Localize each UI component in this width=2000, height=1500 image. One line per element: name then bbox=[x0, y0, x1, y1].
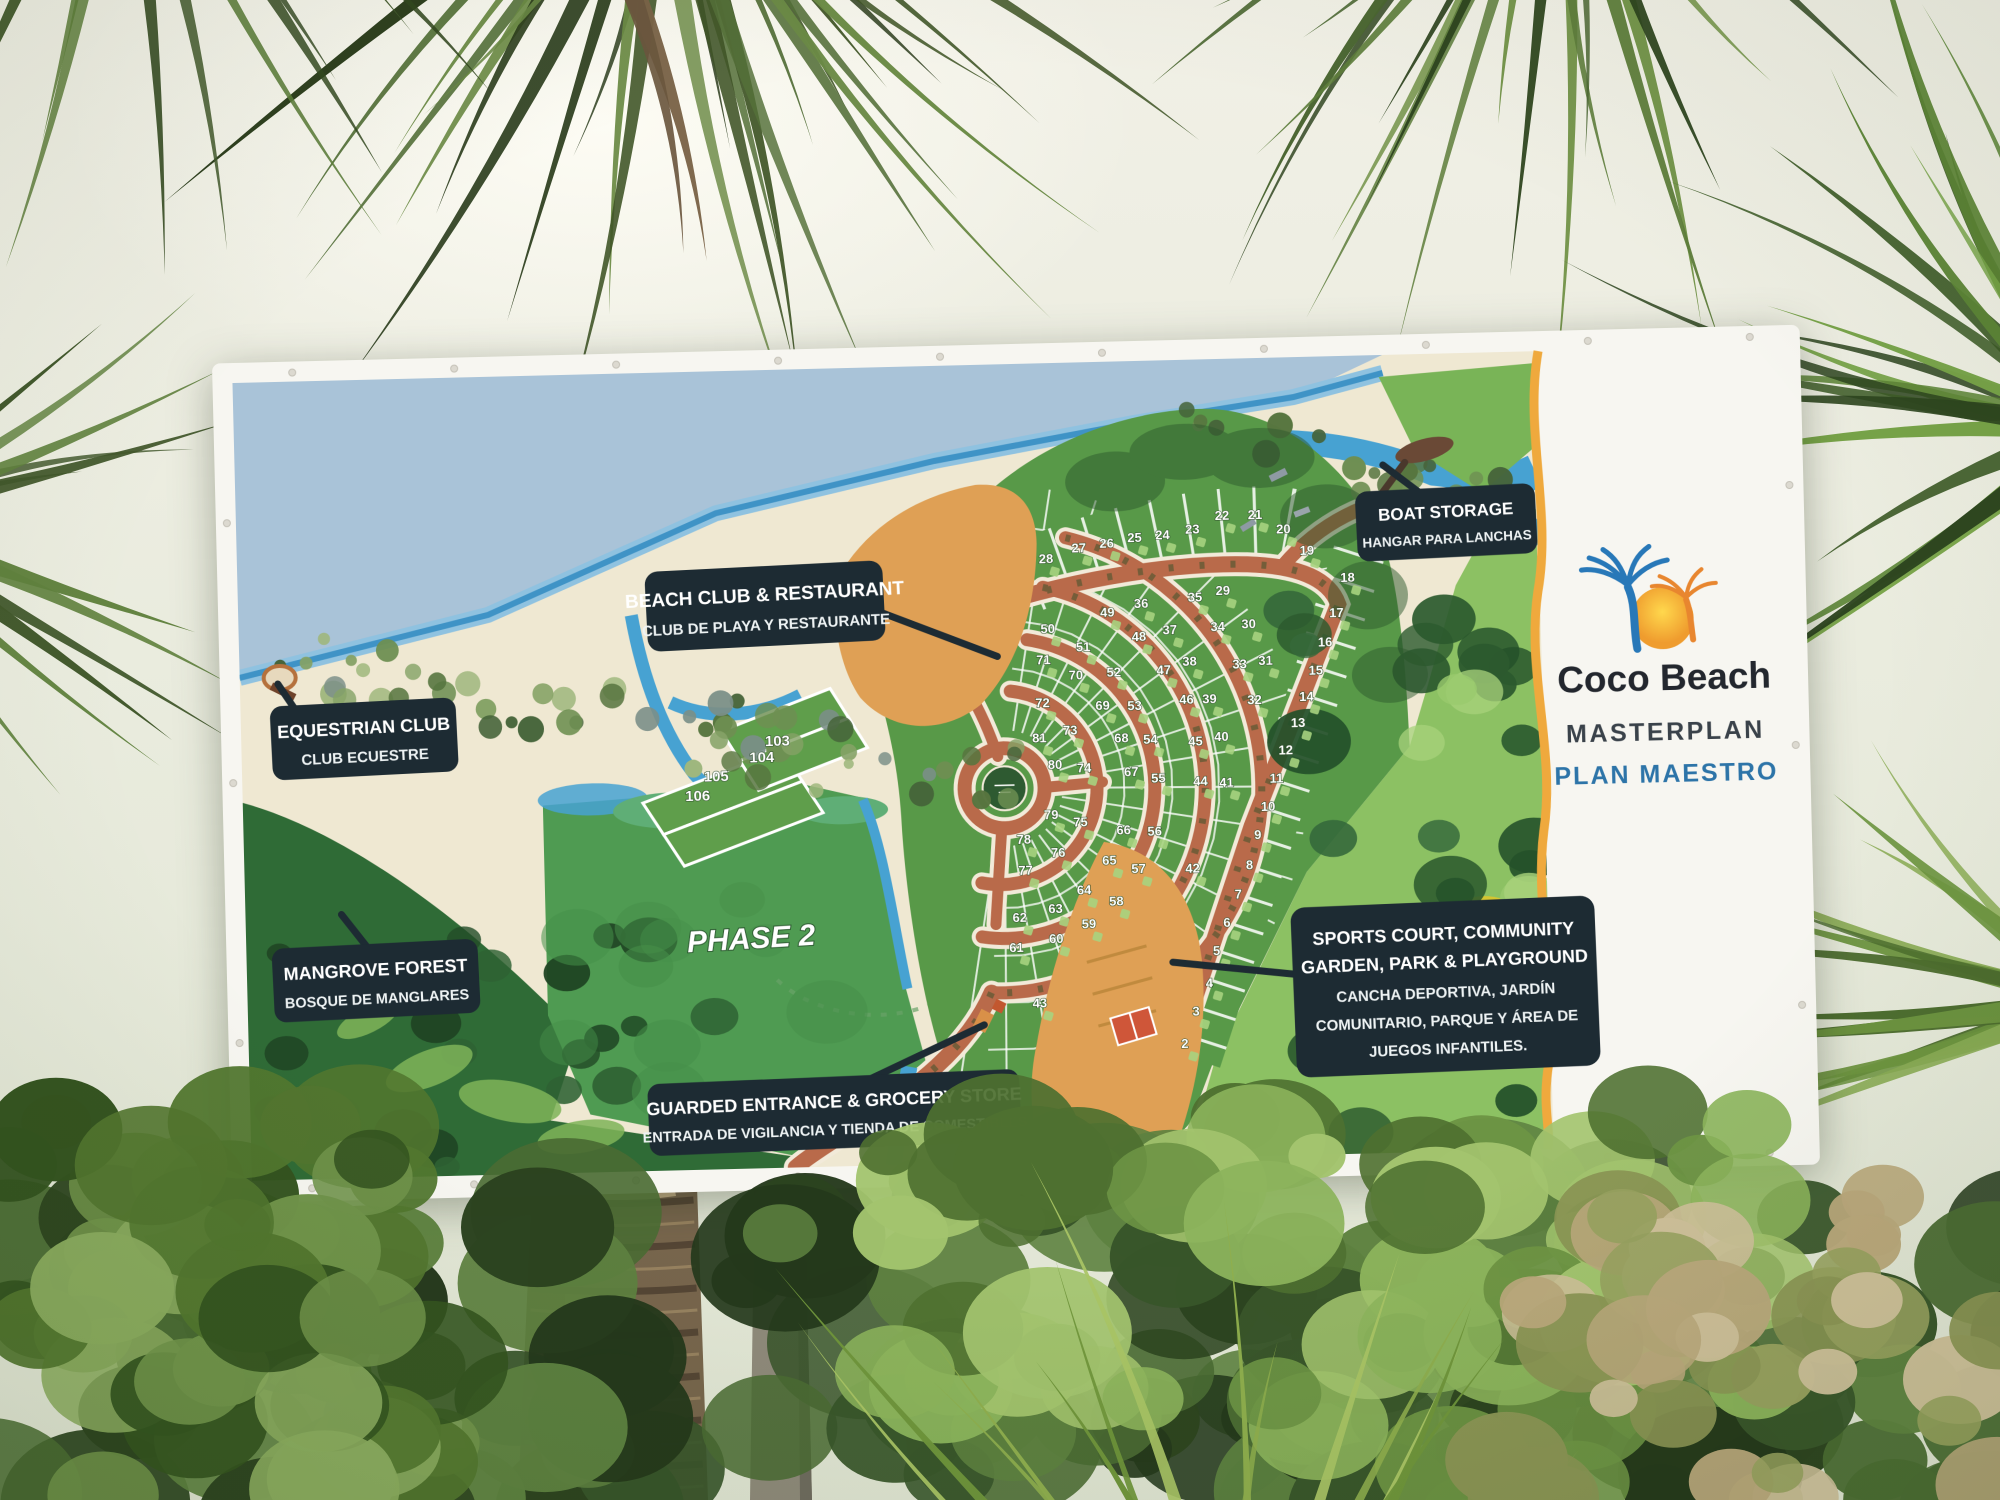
lot-number: 37 bbox=[1162, 622, 1177, 637]
lot-number: 16 bbox=[1318, 634, 1333, 649]
lot-number: 52 bbox=[1106, 664, 1121, 679]
lot-number: 15 bbox=[1308, 662, 1323, 677]
lot-number: 24 bbox=[1155, 527, 1171, 542]
lot-number: 46 bbox=[1179, 692, 1194, 707]
lot-number: 39 bbox=[1202, 691, 1217, 706]
lot-number: 27 bbox=[1071, 540, 1086, 555]
lot-number: 49 bbox=[1100, 605, 1115, 620]
lot-number: 61 bbox=[1009, 940, 1024, 955]
lot-number: 36 bbox=[1134, 596, 1149, 611]
lot-number: 43 bbox=[1032, 995, 1047, 1010]
lot-number: 13 bbox=[1291, 715, 1306, 730]
lot-number: 77 bbox=[1018, 863, 1033, 878]
label-equestrian-club: EQUESTRIAN CLUB CLUB ECUESTRE bbox=[269, 697, 459, 780]
lot-number: 14 bbox=[1299, 689, 1315, 704]
lot-number: 79 bbox=[1044, 807, 1059, 822]
lot-number: 2 bbox=[1181, 1036, 1189, 1051]
lot-number: 104 bbox=[749, 749, 775, 767]
lot-number: 5 bbox=[1213, 943, 1221, 958]
lot-number: 70 bbox=[1068, 667, 1083, 682]
lot-number: 26 bbox=[1099, 536, 1114, 551]
masterplan-text: MASTERPLAN bbox=[1566, 716, 1765, 749]
lot-number: 67 bbox=[1124, 764, 1139, 779]
lot-number: 41 bbox=[1219, 775, 1234, 790]
lot-number: 76 bbox=[1051, 845, 1066, 860]
lot-number: 25 bbox=[1127, 530, 1142, 545]
lot-number: 8 bbox=[1246, 857, 1254, 872]
lot-number: 59 bbox=[1082, 916, 1097, 931]
lot-number: 106 bbox=[685, 787, 710, 805]
label-boat-storage: BOAT STORAGE HANGAR PARA LANCHAS bbox=[1355, 483, 1538, 562]
lot-number: 80 bbox=[1048, 757, 1063, 772]
distant-pole bbox=[1435, 1230, 1530, 1500]
lot-number: 51 bbox=[1076, 639, 1091, 654]
lot-number: 30 bbox=[1241, 616, 1256, 631]
sign-panel: 2827262524232221201918171615141312111098… bbox=[212, 325, 1820, 1204]
lot-number: 33 bbox=[1232, 656, 1247, 671]
lot-number: 66 bbox=[1116, 822, 1131, 837]
lot-number: 19 bbox=[1299, 543, 1314, 558]
lot-number: 17 bbox=[1329, 605, 1344, 620]
lot-number: 20 bbox=[1276, 521, 1291, 536]
lot-number: 55 bbox=[1151, 770, 1166, 785]
lot-number: 72 bbox=[1035, 695, 1050, 710]
lot-number: 28 bbox=[1039, 551, 1054, 566]
lot-number: 38 bbox=[1182, 654, 1197, 669]
lot-number: 18 bbox=[1340, 570, 1355, 585]
lot-number: 34 bbox=[1210, 619, 1226, 634]
lot-number: 56 bbox=[1147, 823, 1162, 838]
lot-number: 3 bbox=[1192, 1004, 1200, 1019]
lot-number: 74 bbox=[1077, 760, 1093, 775]
lot-number: 71 bbox=[1036, 652, 1051, 667]
lot-number: 21 bbox=[1248, 507, 1263, 522]
lot-number: 32 bbox=[1247, 692, 1262, 707]
billboard-photo: 2827262524232221201918171615141312111098… bbox=[0, 0, 2000, 1500]
lot-number: 103 bbox=[765, 733, 790, 751]
lot-number: 73 bbox=[1063, 722, 1078, 737]
lot-number: 10 bbox=[1261, 799, 1276, 814]
lot-number: 69 bbox=[1095, 698, 1110, 713]
lot-number: 35 bbox=[1188, 589, 1203, 604]
lot-number: 81 bbox=[1032, 730, 1047, 745]
lot-number: 12 bbox=[1278, 742, 1293, 757]
lot-number: 11 bbox=[1269, 770, 1283, 785]
lot-number: 105 bbox=[704, 768, 729, 786]
lot-number: 58 bbox=[1109, 893, 1124, 908]
lot-number: 64 bbox=[1077, 882, 1093, 897]
lot-number: 44 bbox=[1193, 773, 1209, 788]
lot-number: 31 bbox=[1258, 653, 1273, 668]
lot-number: 75 bbox=[1073, 814, 1088, 829]
lot-number: 54 bbox=[1143, 732, 1159, 747]
lot-number: 9 bbox=[1254, 827, 1262, 842]
lot-number: 47 bbox=[1156, 662, 1171, 677]
lot-number: 57 bbox=[1131, 861, 1146, 876]
lot-number: 4 bbox=[1206, 975, 1214, 990]
label-beach-club: BEACH CLUB & RESTAURANT CLUB DE PLAYA Y … bbox=[624, 559, 907, 653]
lot-number: 7 bbox=[1234, 887, 1242, 902]
lot-number: 68 bbox=[1114, 730, 1129, 745]
lot-number: 29 bbox=[1215, 583, 1230, 598]
lot-number: 23 bbox=[1185, 521, 1200, 536]
lot-number: 22 bbox=[1215, 508, 1230, 523]
lot-number: 50 bbox=[1040, 621, 1055, 636]
lot-number: 48 bbox=[1132, 629, 1147, 644]
lot-number: 63 bbox=[1048, 901, 1063, 916]
lot-number: 42 bbox=[1185, 861, 1200, 876]
plan-maestro-text: PLAN MAESTRO bbox=[1554, 757, 1779, 790]
lot-number: 65 bbox=[1102, 853, 1117, 868]
lot-number: 6 bbox=[1223, 915, 1231, 930]
lot-number: 78 bbox=[1016, 832, 1031, 847]
lot-number: 60 bbox=[1049, 931, 1064, 946]
label-sports-court: SPORTS COURT, COMMUNITY GARDEN, PARK & P… bbox=[1290, 895, 1601, 1078]
label-mangrove-forest: MANGROVE FOREST BOSQUE DE MANGLARES bbox=[271, 939, 480, 1023]
lot-number: 62 bbox=[1012, 910, 1027, 925]
lot-number: 45 bbox=[1188, 733, 1203, 748]
billboard-sign: 2827262524232221201918171615141312111098… bbox=[212, 325, 1820, 1204]
lot-number: 40 bbox=[1214, 729, 1229, 744]
lot-number: 53 bbox=[1127, 698, 1142, 713]
brand-name: Coco Beach bbox=[1557, 655, 1772, 701]
